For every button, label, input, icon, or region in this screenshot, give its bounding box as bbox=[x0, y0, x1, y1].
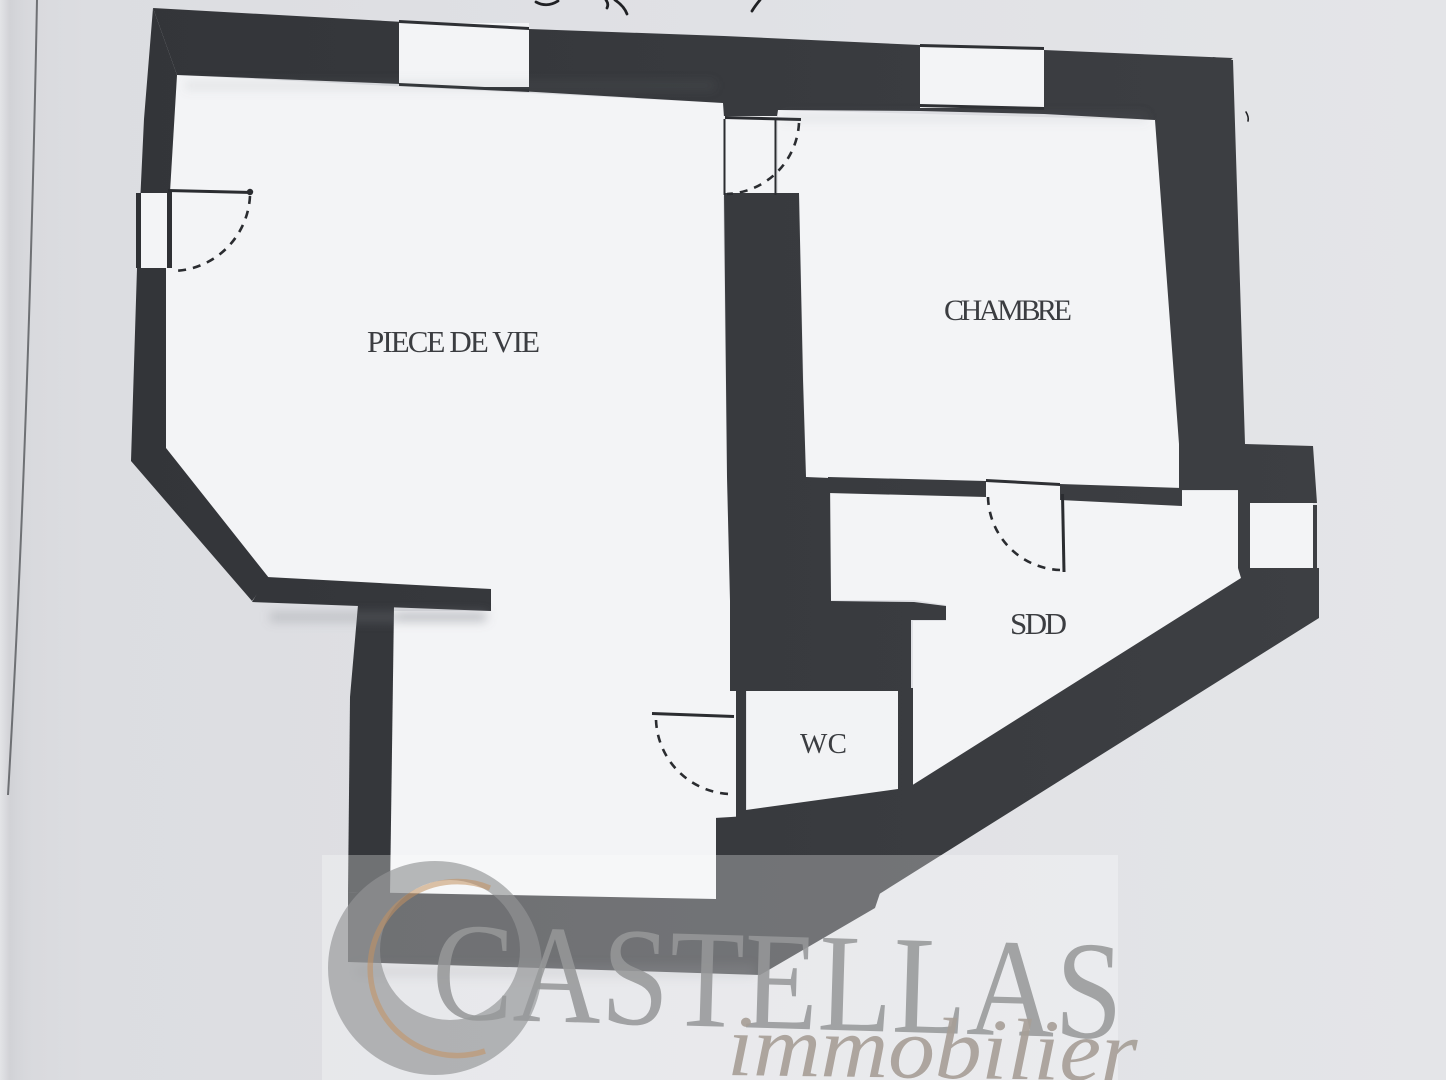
svg-text:WC: WC bbox=[800, 728, 847, 760]
svg-text:immobilier: immobilier bbox=[727, 997, 1140, 1080]
svg-text:PIECE DE VIE: PIECE DE VIE bbox=[367, 324, 540, 359]
svg-text:SDD: SDD bbox=[1010, 606, 1067, 641]
svg-text:CHAMBRE: CHAMBRE bbox=[944, 294, 1072, 327]
